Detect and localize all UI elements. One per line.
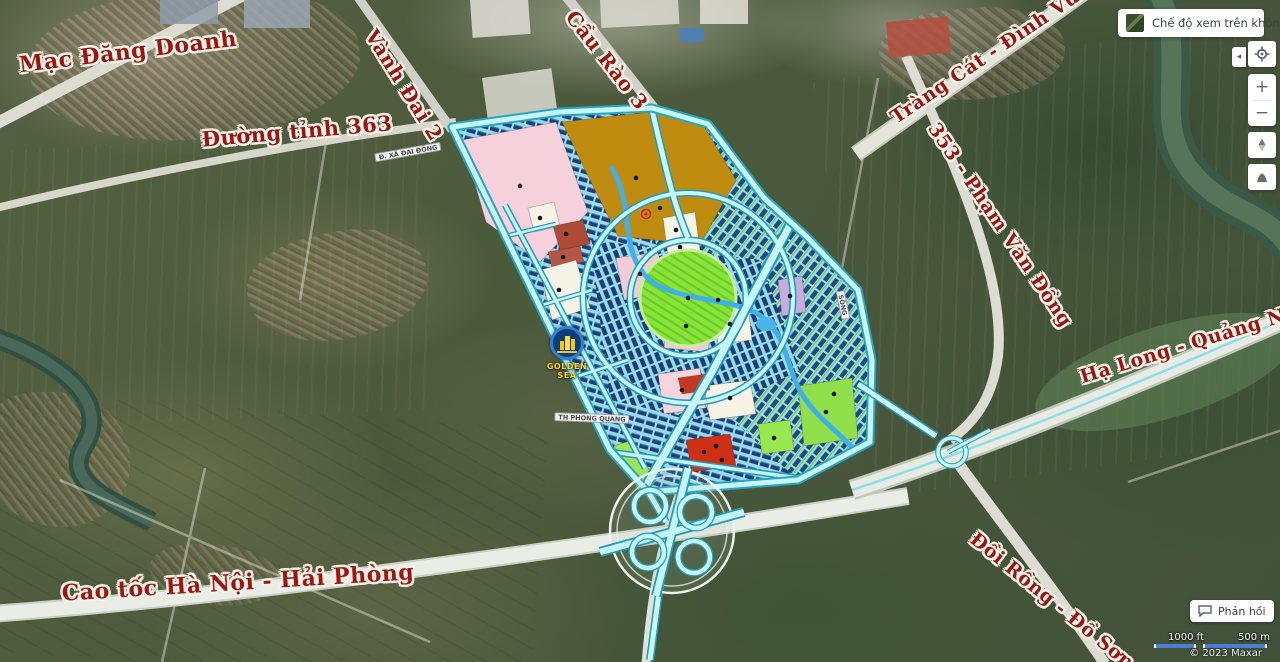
collapse-controls-button[interactable]: ◂ bbox=[1232, 47, 1246, 67]
chevron-left-icon: ◂ bbox=[1237, 52, 1242, 62]
golden-sea-emblem-icon bbox=[550, 326, 584, 360]
zoom-out-button[interactable]: − bbox=[1248, 101, 1276, 127]
pegman-button[interactable] bbox=[1248, 164, 1276, 190]
project-logo-name: GOLDEN SEA bbox=[545, 362, 589, 380]
scale-imperial-label: 1000 ft bbox=[1168, 632, 1204, 643]
compass-button[interactable] bbox=[1248, 132, 1276, 158]
scale-metric-label: 500 m bbox=[1238, 632, 1270, 643]
my-location-button[interactable] bbox=[1248, 41, 1276, 67]
feedback-label: Phản hồi bbox=[1218, 605, 1266, 618]
scale-bar: 1000 ft 500 m bbox=[1154, 632, 1274, 648]
project-logo: GOLDEN SEA bbox=[545, 326, 589, 380]
aerial-view-toggle[interactable]: Chế độ xem trên không bbox=[1118, 9, 1264, 37]
my-location-icon bbox=[1254, 46, 1270, 62]
compass-needle-icon bbox=[1254, 137, 1270, 153]
zoom-panel: + − bbox=[1248, 74, 1276, 126]
feedback-button[interactable]: Phản hồi bbox=[1190, 600, 1274, 622]
map-canvas[interactable]: Đ. XÃ ĐẠI ĐỒNG TH PHONG QUANG SÔNG Mạc Đ… bbox=[0, 0, 1280, 662]
pegman-icon bbox=[1254, 169, 1270, 185]
speech-bubble-icon bbox=[1198, 605, 1212, 617]
zoom-in-button[interactable]: + bbox=[1248, 74, 1276, 100]
aerial-thumbnail-icon bbox=[1126, 14, 1144, 32]
aerial-toggle-label: Chế độ xem trên không bbox=[1152, 16, 1280, 30]
map-attribution: © 2023 Maxar bbox=[1189, 648, 1262, 659]
